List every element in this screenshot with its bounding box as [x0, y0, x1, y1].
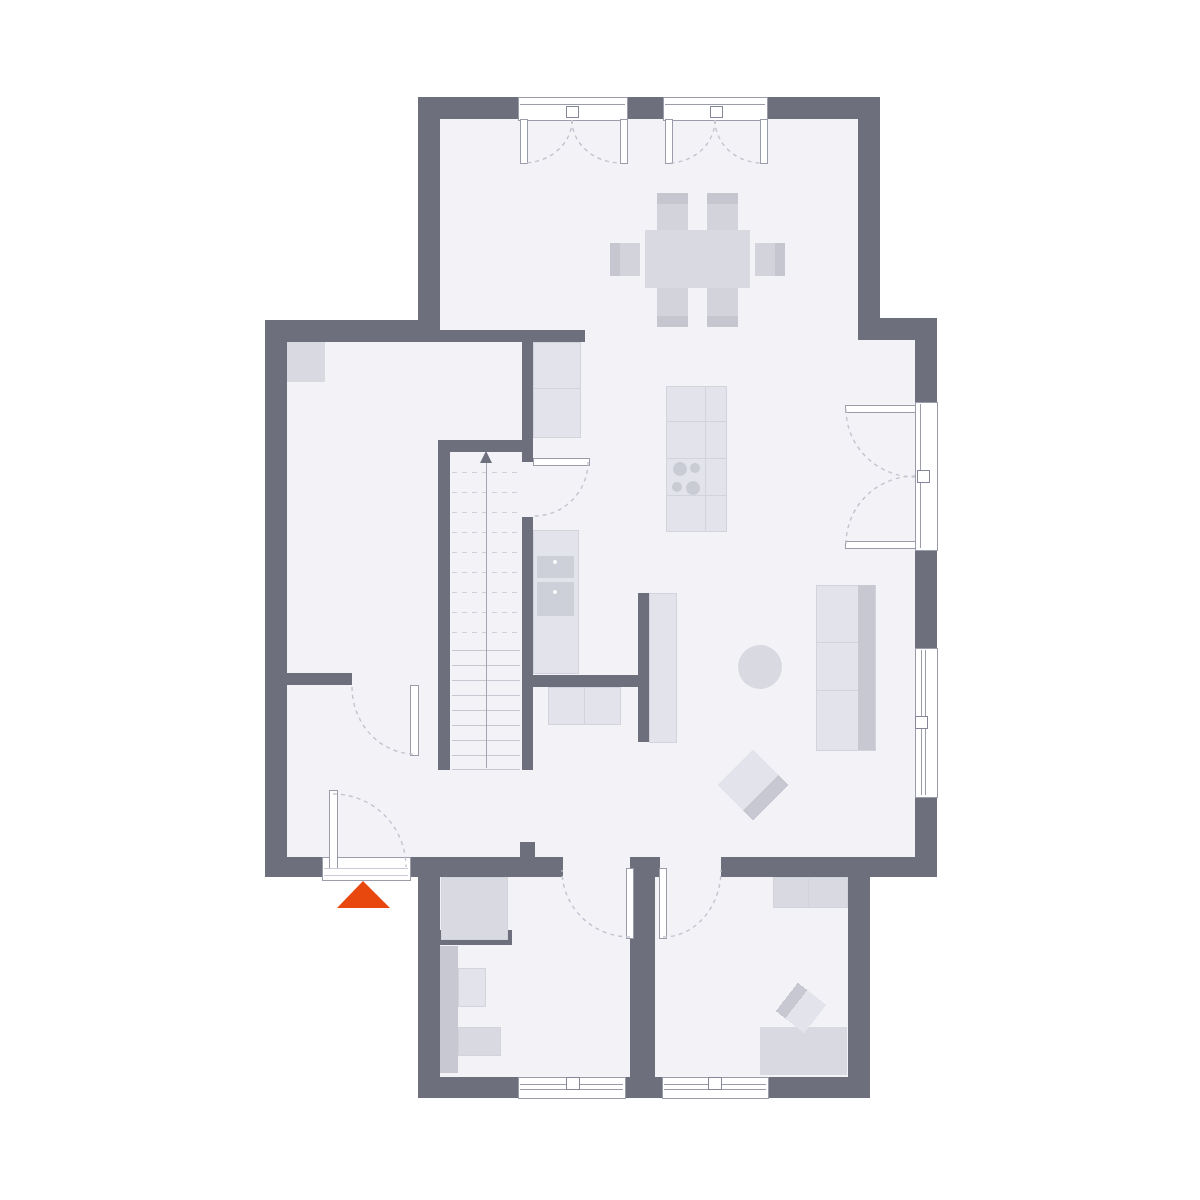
wall-tv-partition: [638, 593, 649, 742]
kitchen-counter: [533, 342, 580, 437]
french-door-right-bottom-leaf: [845, 541, 915, 548]
french-door-top-2-left-leaf: [665, 119, 672, 163]
kitchen-door-leaf: [533, 458, 589, 465]
coffee-table: [738, 645, 782, 689]
wall-room-divider: [630, 877, 655, 1079]
wall-kitchen-hall: [522, 675, 649, 687]
tv-sideboard: [649, 593, 676, 742]
cooktop-burner: [672, 482, 682, 492]
wall-hall-stub: [280, 673, 352, 685]
french-door-right-top-leaf: [845, 405, 915, 412]
wall-dining-right: [858, 97, 880, 340]
wall-bottomblock-right: [848, 875, 870, 1098]
wall-stairwell-top: [438, 440, 533, 452]
french-door-top-1-right-leaf: [620, 119, 627, 163]
wall-stairwell-left: [438, 440, 450, 770]
wall-bottomblock-bottom-right: [768, 1077, 870, 1098]
dining-chair-back: [775, 243, 785, 276]
french-door-top-2-right-leaf: [760, 119, 767, 163]
entrance-door-leaf: [329, 790, 337, 868]
dining-table: [645, 230, 750, 288]
wall-outer-left: [265, 320, 287, 877]
office-wardrobe: [773, 877, 847, 907]
window-handle: [917, 470, 929, 482]
cooktop-burner: [686, 481, 700, 495]
window-handle: [566, 106, 578, 117]
bath-door-leaf: [626, 868, 633, 938]
oven-knob: [553, 560, 557, 564]
dining-chair-back: [707, 193, 738, 204]
wall-bottom-right: [721, 857, 937, 877]
entrance-marker: [337, 881, 390, 908]
dining-chair-back: [610, 243, 620, 276]
window-handle: [710, 106, 722, 117]
bath-wc: [458, 1027, 500, 1055]
wall-bottom-left-of-entry: [265, 857, 322, 877]
layer-markers: [337, 881, 390, 908]
bath-sink: [458, 968, 485, 1006]
wall-bottom-divider-top: [630, 857, 660, 877]
kitchen-oven: [537, 582, 574, 616]
cooktop-burner: [673, 462, 687, 476]
wall-dining-left: [418, 97, 440, 342]
dining-chair-back: [657, 316, 688, 327]
wardrobe-left-room: [287, 342, 325, 382]
wall-mid-top-left: [265, 320, 440, 342]
wall-bottomblock-bottom-left: [418, 1077, 518, 1098]
dining-chair-back: [657, 193, 688, 204]
window-handle: [915, 716, 927, 728]
kitchen-oven: [537, 556, 574, 578]
wall-bottomblock-left: [418, 857, 440, 1098]
wall-outer-right-upper: [915, 318, 937, 404]
cooktop-burner: [690, 463, 700, 473]
wall-leftroom-kitchen-lower: [522, 517, 533, 770]
hall-door-leaf: [410, 685, 418, 755]
wall-bottomblock-bottom-mid: [625, 1077, 662, 1098]
wall-hall-pier: [520, 842, 535, 858]
dining-chair-back: [707, 316, 738, 327]
window-handle: [566, 1077, 579, 1089]
wall-dining-top-mid: [627, 97, 663, 119]
office-desk: [760, 1027, 847, 1075]
shower: [441, 877, 507, 939]
floor-plan: [0, 0, 1200, 1200]
french-door-top-1-left-leaf: [520, 119, 527, 163]
wall-outer-right-mid: [915, 548, 937, 650]
window-handle: [708, 1077, 721, 1089]
floor-plan-canvas: [0, 0, 1200, 1200]
sofa-back: [858, 585, 875, 750]
oven-knob: [553, 590, 557, 594]
wall-kitchen-top: [433, 330, 585, 342]
office-door-leaf: [659, 868, 666, 938]
bath-vanity: [440, 946, 458, 1073]
